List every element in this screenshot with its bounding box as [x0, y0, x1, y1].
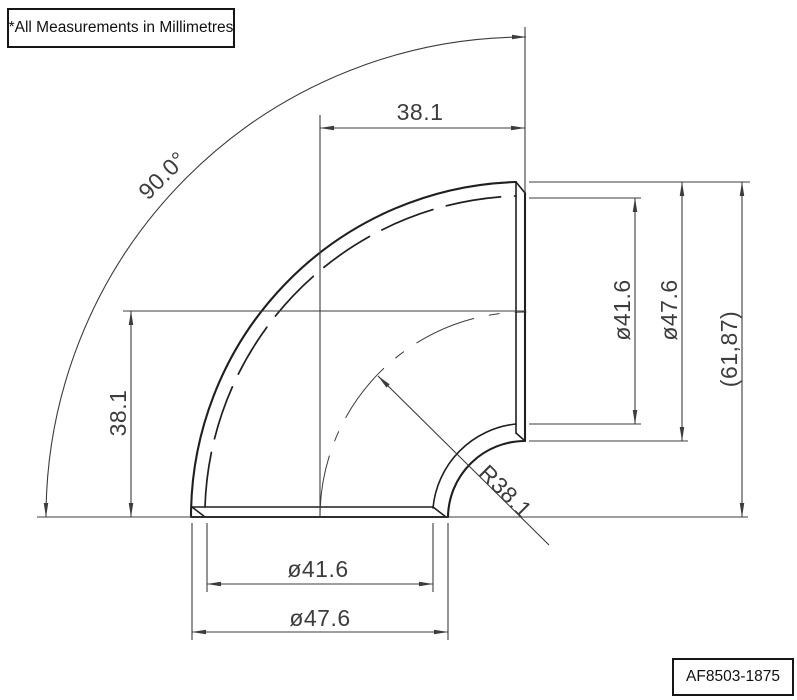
- bottom-od-label: ø47.6: [289, 605, 350, 631]
- dimension-bottom-outer-diameter: ø47.6: [192, 605, 448, 632]
- right-port-bottom-bevel: [516, 433, 525, 441]
- side-od-label: ø47.6: [656, 279, 682, 340]
- overall-height-label: (61,87): [716, 311, 742, 387]
- dimension-side-inner-diameter: ø41.6: [609, 198, 635, 424]
- angle-label: 90.0°: [133, 146, 191, 204]
- dimension-left-offset: 38.1: [105, 311, 131, 517]
- dimension-angle: 90.0°: [46, 37, 526, 517]
- bend-radius-leader-line: [378, 376, 549, 545]
- bottom-port-left-bevel: [192, 507, 205, 517]
- elbow-outer-id-arc-hidden: [205, 196, 516, 507]
- dimension-overall-height: (61,87): [716, 182, 742, 517]
- dimension-bend-radius: R38.1: [378, 376, 549, 545]
- side-id-label: ø41.6: [609, 279, 635, 340]
- elbow-drawing-canvas: 90.0° 38.1 38.1 ø41.6 ø47.6 (61,87) R38.…: [0, 0, 797, 700]
- dimension-top-offset: 38.1: [320, 99, 525, 128]
- bottom-id-label: ø41.6: [287, 556, 348, 582]
- bend-radius-label: R38.1: [474, 460, 538, 524]
- bottom-port-right-bevel: [433, 507, 446, 517]
- dimension-side-outer-diameter: ø47.6: [656, 182, 682, 441]
- angle-arc-dimension-line: [46, 37, 526, 517]
- extension-lines: [37, 27, 750, 640]
- part-number-text: AF8503-1875: [686, 668, 780, 686]
- left-offset-label: 38.1: [105, 390, 131, 437]
- top-offset-label: 38.1: [397, 99, 444, 125]
- elbow-body: [191, 182, 526, 517]
- part-number-box: AF8503-1875: [672, 658, 794, 696]
- right-port-top-bevel: [516, 182, 525, 193]
- dimension-bottom-inner-diameter: ø41.6: [207, 556, 433, 584]
